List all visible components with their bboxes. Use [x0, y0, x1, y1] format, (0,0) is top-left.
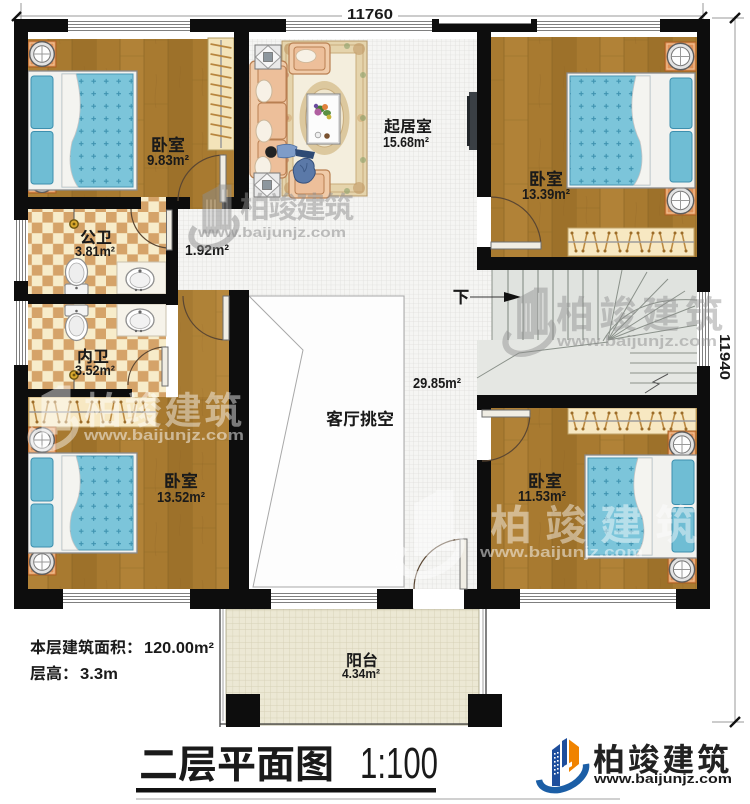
svg-text:9.83m²: 9.83m² [147, 153, 189, 169]
svg-text:www.baijunjz.com: www.baijunjz.com [479, 544, 643, 561]
svg-text:www.baijunjz.com: www.baijunjz.com [556, 333, 717, 350]
svg-text:11.53m²: 11.53m² [518, 489, 566, 505]
svg-text:15.68m²: 15.68m² [383, 135, 429, 151]
svg-text:11940: 11940 [716, 334, 732, 380]
svg-text:1:100: 1:100 [360, 739, 438, 788]
svg-text:13.39m²: 13.39m² [522, 187, 570, 203]
svg-text:www.baijunjz.com: www.baijunjz.com [83, 427, 244, 444]
svg-text:120.00m²: 120.00m² [144, 640, 214, 657]
svg-text:3.52m²: 3.52m² [75, 362, 115, 378]
svg-text:4.34m²: 4.34m² [342, 666, 381, 681]
svg-text:www.baijunjz.com: www.baijunjz.com [593, 772, 732, 786]
svg-text:29.85m²: 29.85m² [413, 376, 461, 392]
svg-text:13.52m²: 13.52m² [157, 490, 205, 506]
svg-text:3.3m: 3.3m [80, 666, 118, 683]
svg-text:3.81m²: 3.81m² [75, 243, 115, 259]
svg-text:www.baijunjz.com: www.baijunjz.com [197, 224, 346, 240]
